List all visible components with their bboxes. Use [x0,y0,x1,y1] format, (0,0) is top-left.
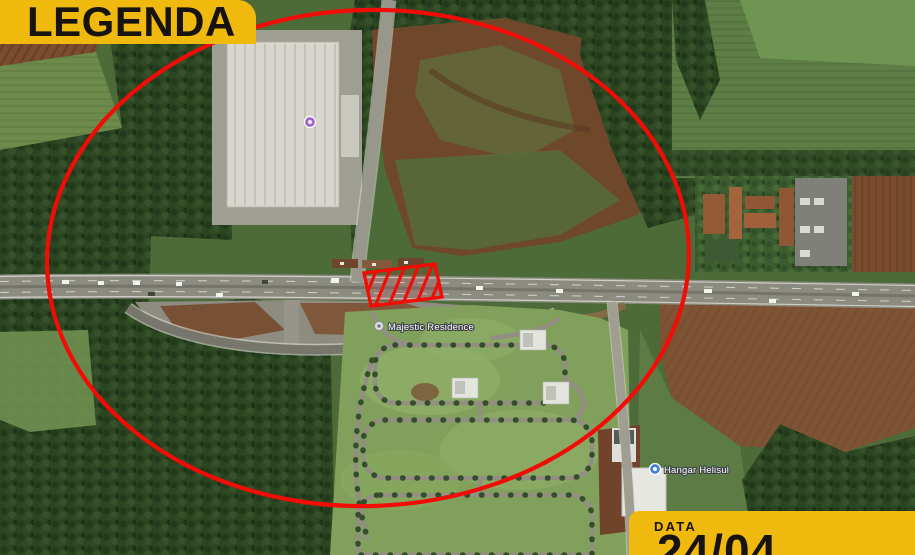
date-banner: DATA 24/04 [629,511,915,555]
satellite-map: Majestic Residence Hangar Helisul [0,0,915,555]
date-banner-value: 24/04 [657,528,777,555]
legend-banner: LEGENDA [0,0,256,44]
poi-purple-marker [305,117,316,128]
warehouse-complex [212,30,362,225]
hangar-helisul-label: Hangar Helisul [664,465,729,476]
news-map-graphic: Majestic Residence Hangar Helisul LEGEND… [0,0,915,555]
legend-banner-label: LEGENDA [27,1,236,43]
condominium-area [330,305,632,555]
majestic-residence-label: Majestic Residence [388,322,474,333]
map-label-majestic: Majestic Residence [375,322,474,334]
